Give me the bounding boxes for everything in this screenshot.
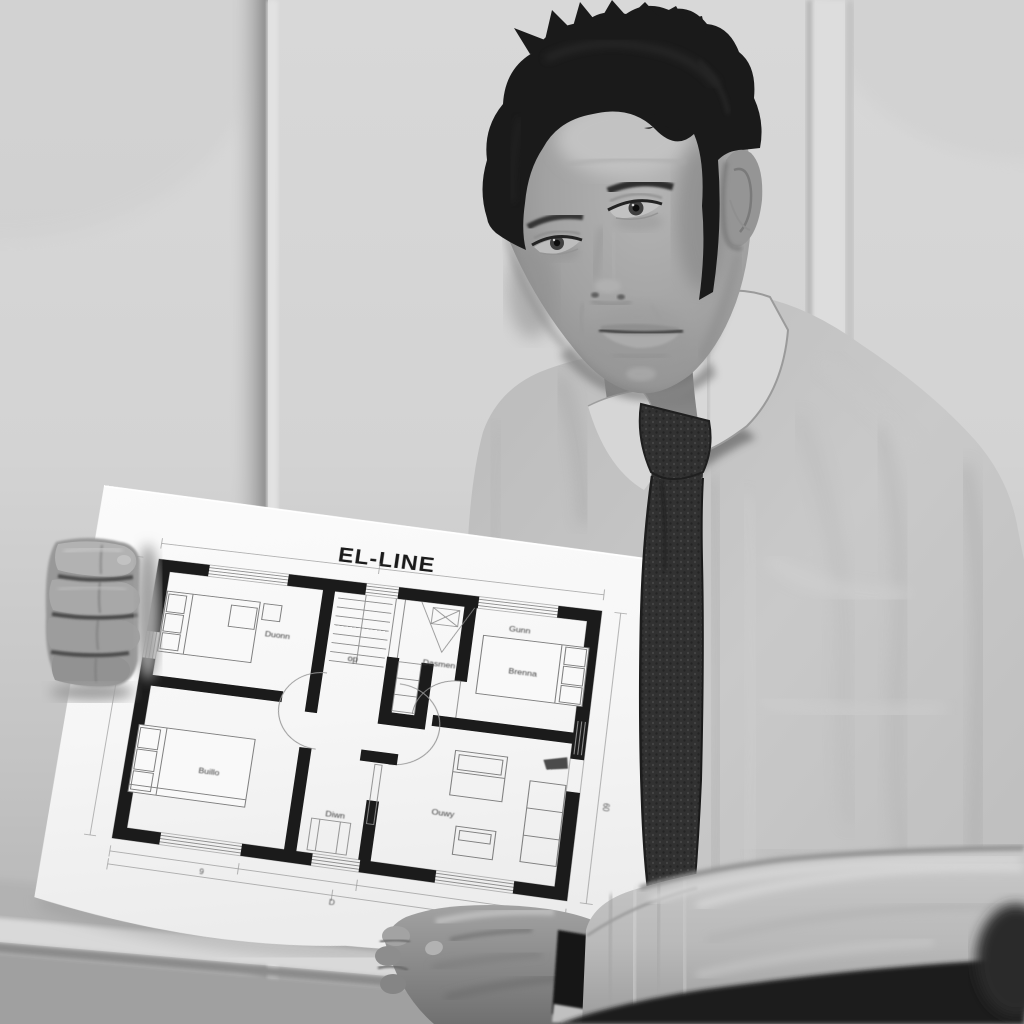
svg-text:60: 60 <box>600 802 611 812</box>
svg-text:op: op <box>347 654 359 664</box>
svg-text:D: D <box>328 898 335 907</box>
